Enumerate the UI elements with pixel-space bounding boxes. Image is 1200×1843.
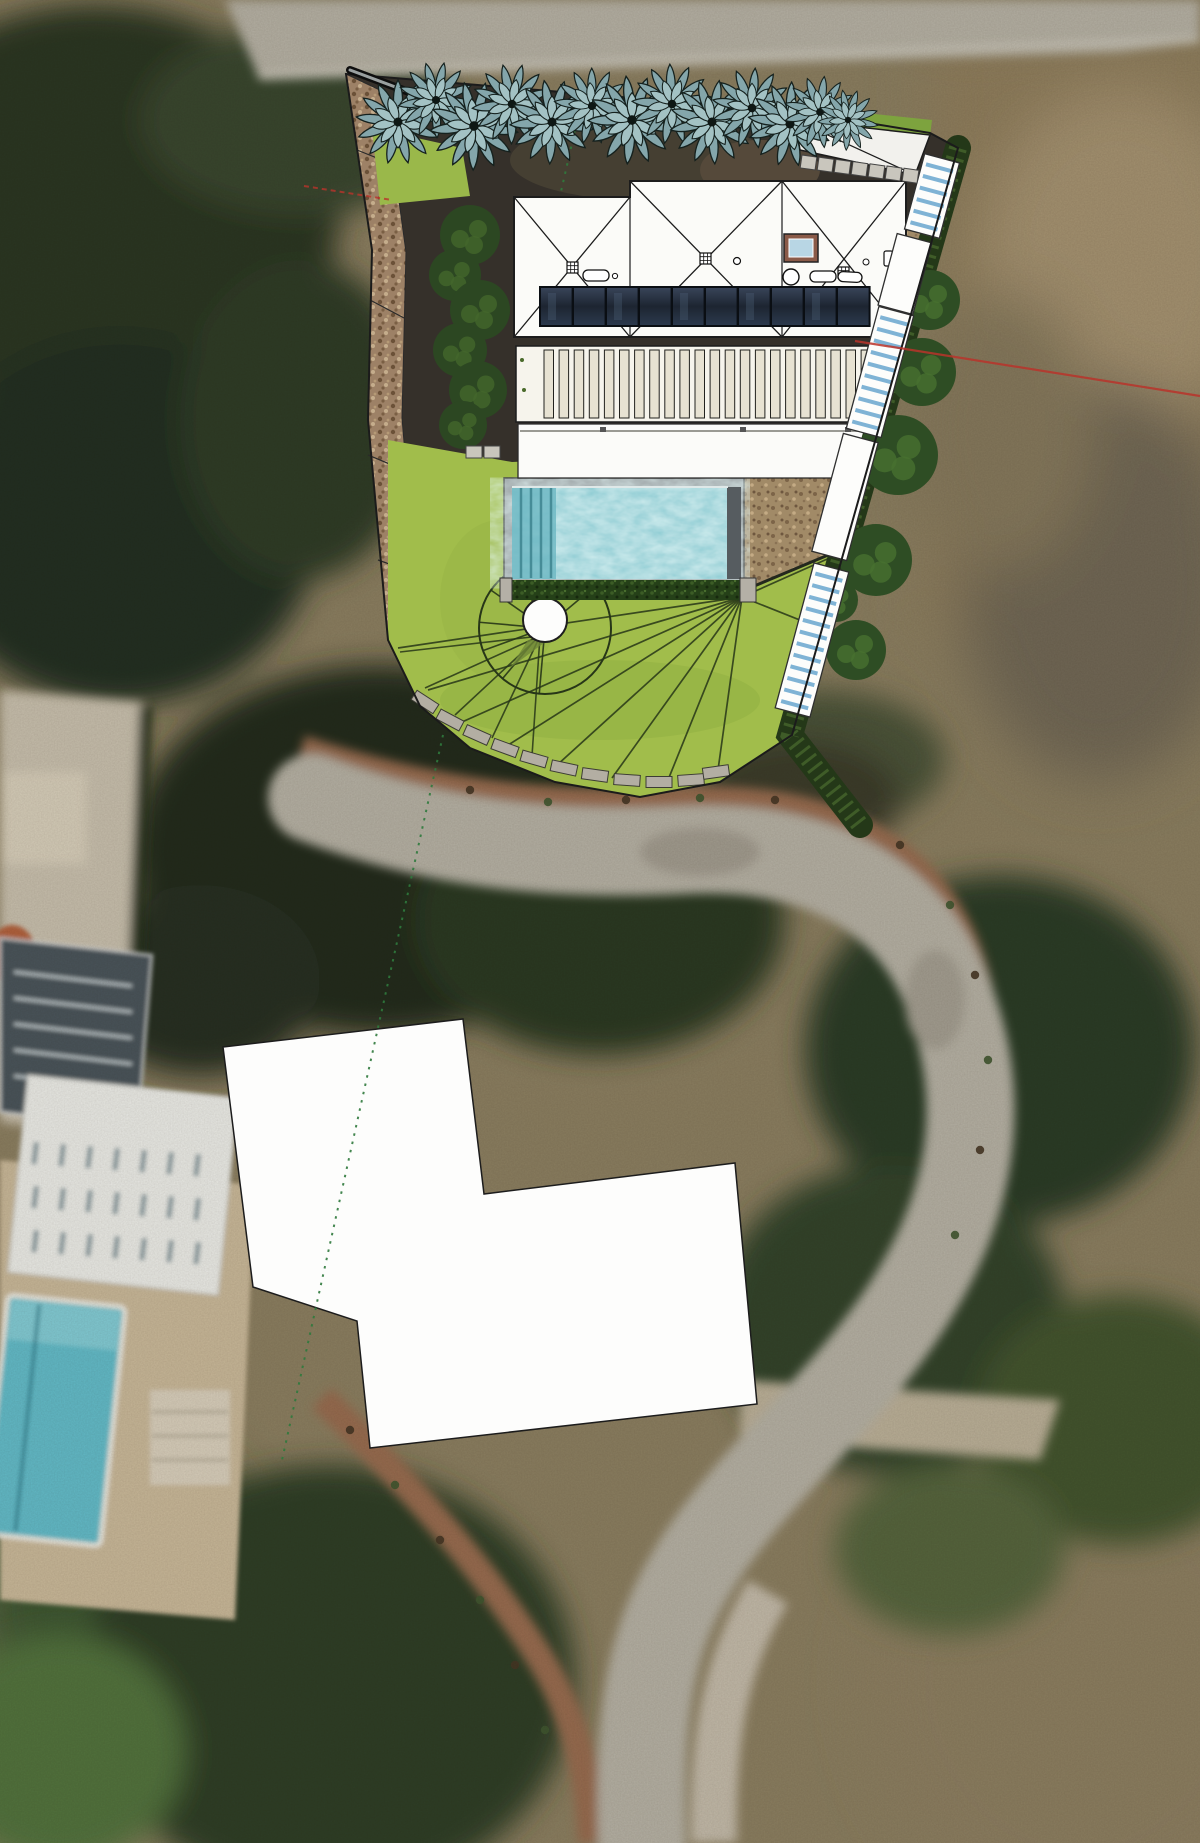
roof-vent-dot xyxy=(612,273,617,278)
louver-slat xyxy=(650,350,660,418)
roof-vent-dot xyxy=(863,259,869,265)
pergola-louver-band xyxy=(516,346,899,422)
terrace-tick xyxy=(600,427,606,432)
solar-panel-glare xyxy=(812,293,820,320)
foliage-highlight xyxy=(475,311,493,329)
louver-slat xyxy=(665,350,675,418)
planting-strip-end-block-east xyxy=(740,578,756,602)
driveway-paver xyxy=(800,155,817,170)
solar-panel xyxy=(771,287,804,326)
louver-slat xyxy=(680,350,690,418)
louver-slat xyxy=(620,350,630,418)
foliage-highlight xyxy=(465,236,483,254)
round-feature xyxy=(523,598,567,642)
foliage-highlight xyxy=(925,301,943,319)
foliage-highlight xyxy=(851,651,869,669)
solar-panel xyxy=(837,287,870,326)
louver-slat xyxy=(725,350,735,418)
foliage-blob xyxy=(439,401,487,449)
louver-slat xyxy=(740,350,750,418)
wall-block xyxy=(614,774,641,787)
site-plan-canvas xyxy=(0,0,1200,1843)
foliage-highlight xyxy=(477,376,494,393)
foliage-highlight xyxy=(916,373,936,393)
solar-panel-glare xyxy=(548,293,556,320)
foliage-highlight xyxy=(891,456,915,480)
driveway-paver xyxy=(834,159,851,174)
foliage-highlight xyxy=(855,635,873,653)
louver-slat xyxy=(695,350,705,418)
roof-vent-pill xyxy=(838,271,862,282)
aerial-site-plan-screenshot xyxy=(0,0,1200,1843)
louver-slat xyxy=(771,350,781,418)
solar-panel-array xyxy=(540,287,870,326)
planting-strip-end-block-west xyxy=(500,578,512,602)
roof-skylight xyxy=(784,234,818,262)
louver-slat xyxy=(574,350,584,418)
foliage-highlight xyxy=(479,295,497,313)
driveway-paver xyxy=(868,164,885,179)
foliage-highlight xyxy=(870,561,892,583)
louver-slat xyxy=(831,350,841,418)
terrace-tick xyxy=(740,427,746,432)
solar-panel xyxy=(573,287,606,326)
roof-hatch xyxy=(567,262,578,273)
foliage-highlight xyxy=(454,262,470,278)
solar-panel xyxy=(606,287,639,326)
skylight-glass xyxy=(789,239,813,257)
solar-panel xyxy=(738,287,771,326)
pergola-louver-slats xyxy=(544,350,886,418)
foliage-highlight xyxy=(897,435,921,459)
foliage-highlight xyxy=(469,220,487,238)
solar-panel-glare xyxy=(746,293,754,320)
pool-steps-zone xyxy=(512,487,556,579)
paver-slab xyxy=(466,446,482,458)
roof-vent-round xyxy=(783,269,799,285)
villa-roof-group xyxy=(514,181,906,337)
foliage-highlight xyxy=(929,285,947,303)
louver-slat xyxy=(544,350,554,418)
wall-block xyxy=(678,774,705,787)
louver-sprig xyxy=(520,358,524,362)
planting-strip-below-pool xyxy=(506,580,742,600)
louver-slat xyxy=(604,350,614,418)
solar-panel xyxy=(672,287,705,326)
louver-slat xyxy=(786,350,796,418)
driveway-paver xyxy=(851,162,868,177)
roof-vent-dot xyxy=(734,258,741,265)
louver-slat xyxy=(801,350,811,418)
swimming-pool-group xyxy=(500,478,756,602)
louver-slat xyxy=(710,350,720,418)
pool-overflow-edge xyxy=(727,487,741,579)
solar-panel xyxy=(639,287,672,326)
solar-panel xyxy=(705,287,738,326)
solar-panel-glare xyxy=(680,293,688,320)
driveway-paver xyxy=(902,168,919,183)
foliage-highlight xyxy=(462,413,476,427)
solar-panel-glare xyxy=(614,293,622,320)
wall-block xyxy=(646,777,672,788)
roof-vent-pill xyxy=(810,271,836,282)
driveway-paver xyxy=(885,166,902,181)
foliage-blob xyxy=(826,620,886,680)
solar-panel xyxy=(804,287,837,326)
louver-slat xyxy=(816,350,826,418)
driveway-paver xyxy=(817,157,834,172)
foliage-highlight xyxy=(921,355,941,375)
roof-vent-pill xyxy=(583,270,609,281)
foliage-highlight xyxy=(459,426,473,440)
louver-sprig xyxy=(522,388,526,392)
solar-panel xyxy=(540,287,573,326)
louver-slat xyxy=(559,350,569,418)
louver-slat xyxy=(635,350,645,418)
terrace-band xyxy=(518,424,872,478)
roof-hatch xyxy=(700,253,711,264)
louver-slat xyxy=(755,350,765,418)
paver-slab xyxy=(484,446,500,458)
louver-slat xyxy=(589,350,599,418)
foliage-highlight xyxy=(459,337,475,353)
foliage-highlight xyxy=(875,542,897,564)
